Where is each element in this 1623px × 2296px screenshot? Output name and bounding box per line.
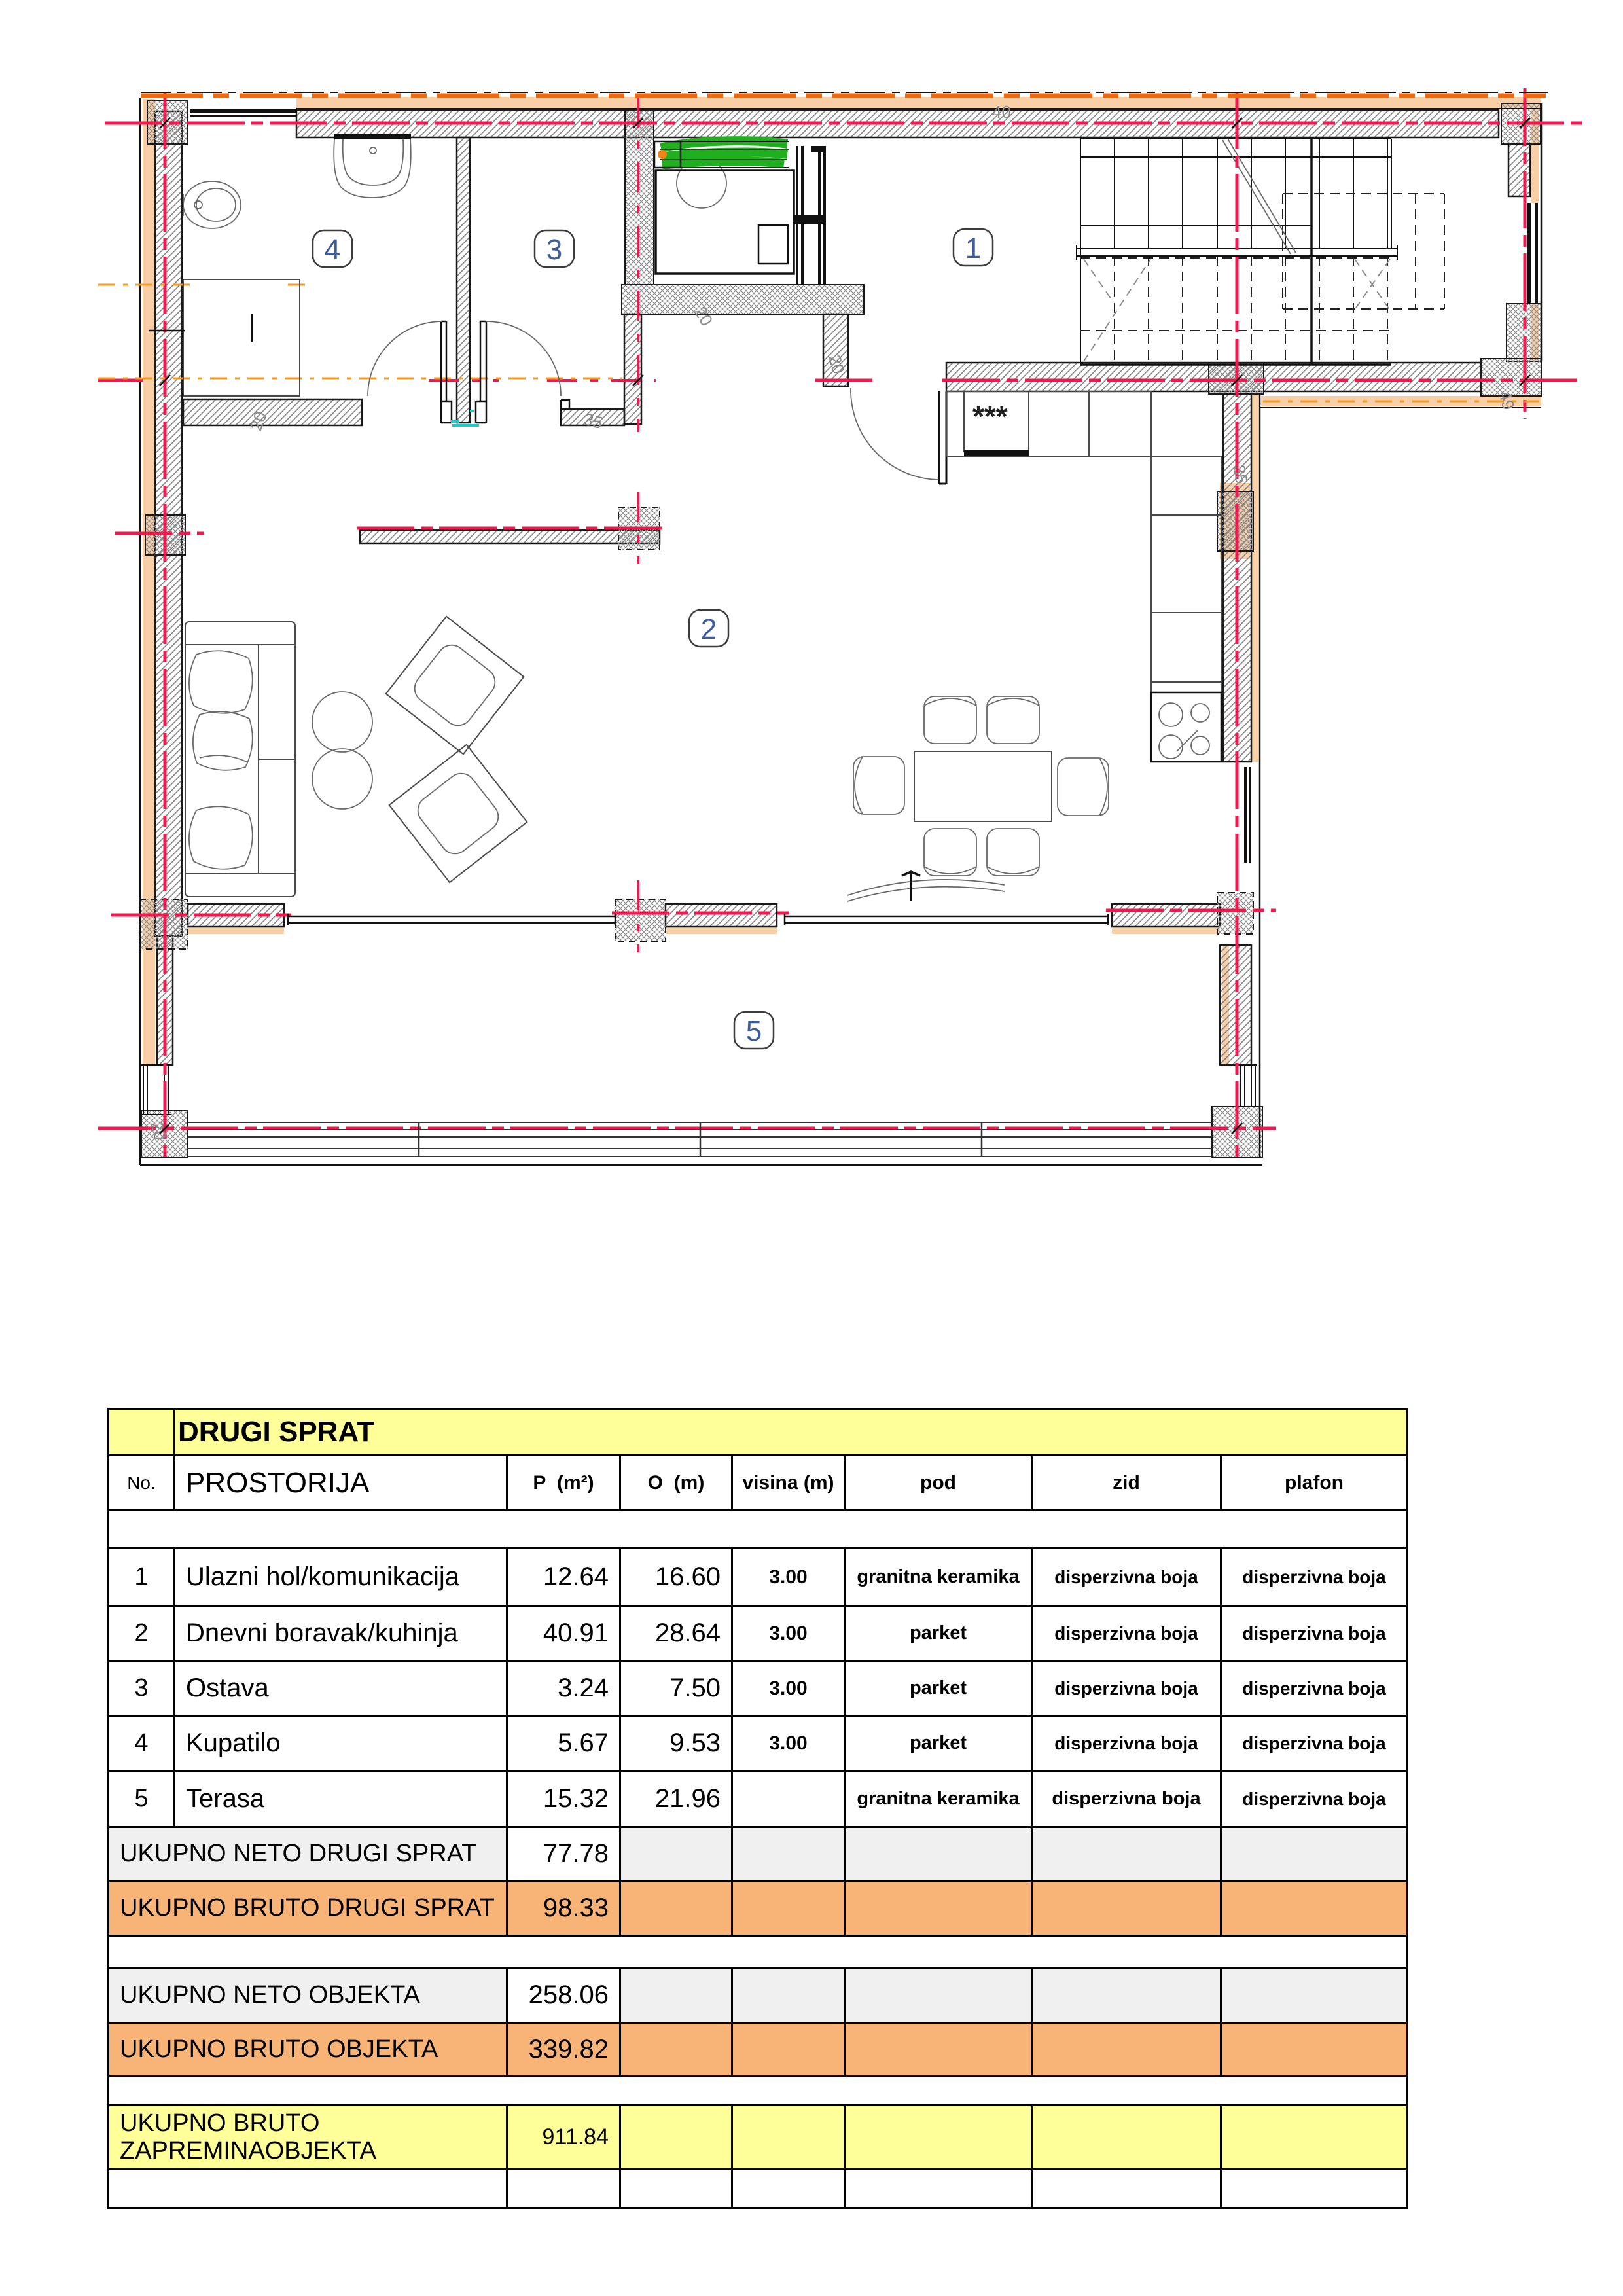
svg-text:***: ***: [972, 399, 1008, 433]
svg-text:4: 4: [325, 234, 340, 266]
svg-text:40: 40: [992, 102, 1011, 122]
svg-text:5: 5: [746, 1015, 762, 1047]
svg-text:35: 35: [581, 409, 605, 433]
svg-text:1: 1: [965, 232, 981, 264]
svg-text:3: 3: [546, 234, 562, 266]
svg-text:49: 49: [1495, 389, 1518, 412]
svg-text:35: 35: [1229, 463, 1252, 486]
svg-text:2: 2: [701, 613, 717, 645]
